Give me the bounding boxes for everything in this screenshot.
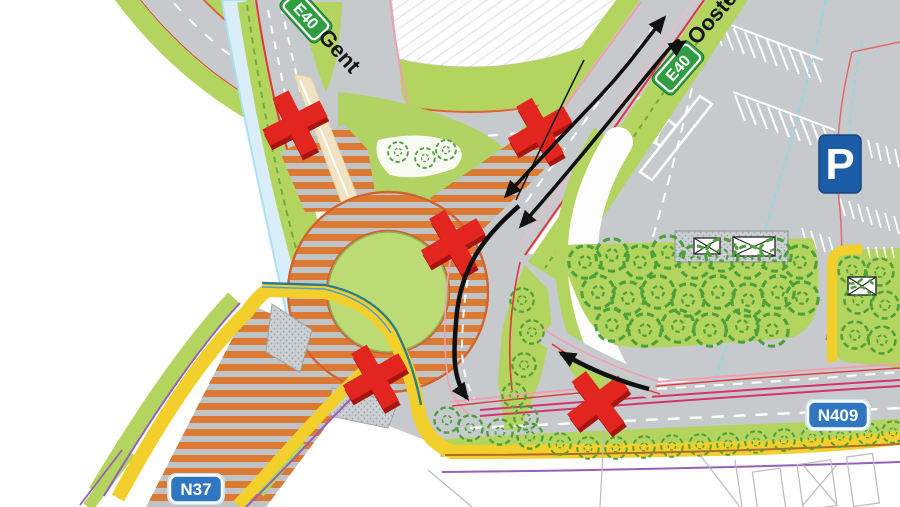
parking-sign-label: P xyxy=(825,140,854,189)
map-canvas: E40 Gent E40 Oostende N409 N37 P xyxy=(0,0,900,507)
roadworks-plan-page: E40 Gent E40 Oostende N409 N37 P xyxy=(0,0,900,507)
n37-badge: N37 xyxy=(167,473,225,505)
n37-badge-label: N37 xyxy=(180,480,211,499)
n409-badge: N409 xyxy=(805,399,871,431)
parking-sign-icon: P xyxy=(819,135,861,193)
n409-badge-label: N409 xyxy=(818,406,859,425)
